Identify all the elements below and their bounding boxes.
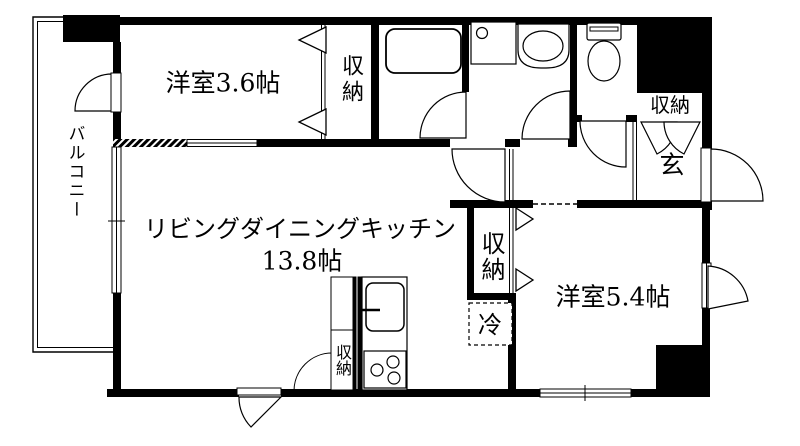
kitchen-sink	[366, 283, 404, 331]
room-label-bedroom-54: 洋室5.4帖	[556, 285, 671, 310]
entrance-door-opening	[701, 148, 711, 202]
hall-door	[452, 149, 505, 202]
kitchen-divider	[358, 277, 361, 390]
ldk-door-opening	[237, 388, 281, 395]
wall-segment	[462, 25, 469, 92]
wall-segment	[113, 42, 121, 74]
entrance-closet-door-right	[664, 122, 700, 154]
washing-machine-tap	[477, 28, 488, 39]
slider-marker	[299, 109, 326, 135]
closet-label-bedroom-54: 収納	[479, 231, 503, 283]
wall-segment	[467, 200, 474, 300]
closet-label-entrance: 収納	[650, 95, 690, 115]
room-label-ldk: リビングダイニングキッチン	[144, 217, 456, 241]
entrance-door	[711, 149, 763, 201]
toilet-tank-lid	[590, 27, 618, 31]
floorplan: 洋室3.6帖 収納 リビングダイニングキッチン 13.8帖 洋室5.4帖 収納 …	[0, 0, 800, 446]
slider-marker	[516, 269, 533, 291]
wall-segment	[656, 345, 710, 397]
wall-segment	[371, 17, 379, 147]
casement-window-swing	[708, 266, 748, 309]
toilet-bowl	[588, 41, 620, 81]
wall-segment	[257, 139, 450, 147]
entrance-label: 玄	[659, 153, 684, 178]
slider-marker	[516, 208, 533, 230]
balcony-door-leaf	[111, 73, 121, 112]
washroom-door	[522, 91, 570, 139]
stove	[364, 351, 406, 388]
stove-burner	[388, 372, 400, 384]
wash-basin-bowl	[523, 31, 563, 61]
washing-machine-pan	[471, 22, 516, 64]
wall-segment	[702, 308, 710, 348]
wall-segment	[626, 115, 637, 122]
windows	[108, 140, 711, 402]
toilet-door	[580, 121, 626, 167]
balcony-label: バルコニー	[66, 125, 83, 220]
wall-segment	[113, 293, 121, 397]
wall-segment	[63, 15, 120, 42]
bathtub	[386, 29, 461, 73]
room-label-ldk-size: 13.8帖	[262, 249, 343, 274]
kitchen-closet-door-arc	[294, 353, 332, 391]
wall-segment	[450, 200, 533, 208]
wall-hatched	[113, 139, 187, 147]
wall-segment	[702, 93, 712, 149]
slider-marker	[299, 27, 326, 53]
wall-segment	[637, 17, 712, 93]
balcony-door	[75, 74, 112, 111]
wall-segment	[577, 200, 712, 208]
wall-segment	[702, 210, 710, 265]
stove-burner	[387, 356, 399, 368]
closet-label-kitchen: 収納	[334, 344, 350, 376]
room-label-bedroom-36: 洋室3.6帖	[166, 71, 281, 96]
closet-label-bedroom-36: 収納	[339, 54, 361, 106]
wall-segment	[505, 139, 520, 147]
stove-burner	[371, 364, 383, 376]
wall-segment	[113, 17, 377, 25]
wall-segment	[107, 389, 239, 397]
bath-door	[420, 92, 466, 138]
wall-segment	[568, 139, 577, 147]
refrigerator-label: 冷	[478, 313, 502, 337]
ldk-outswing-door	[239, 397, 281, 427]
wall-segment	[281, 389, 540, 397]
